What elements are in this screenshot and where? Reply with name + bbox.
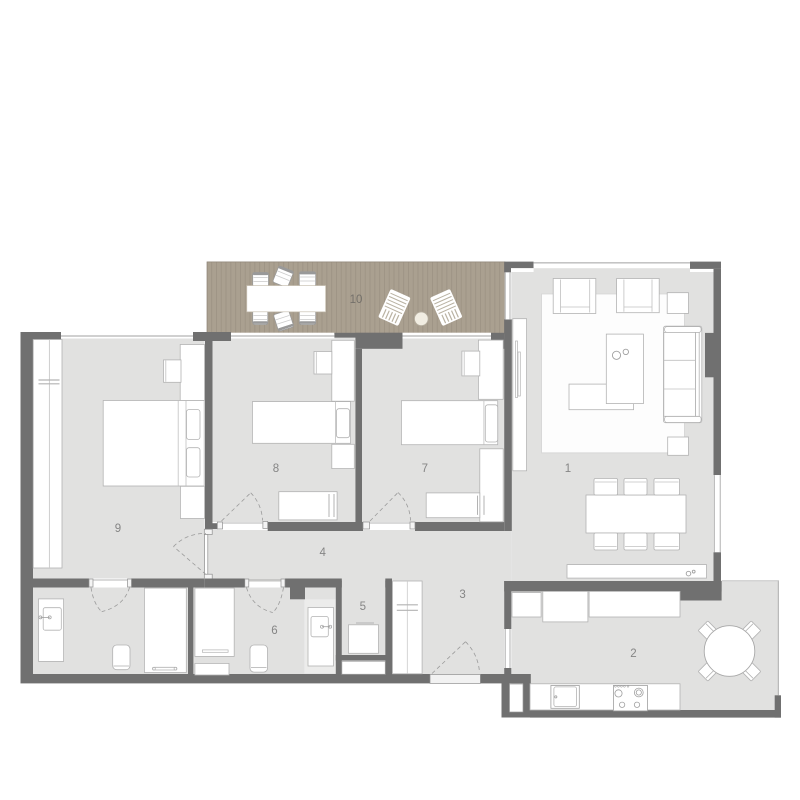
svg-text:9: 9 bbox=[115, 523, 121, 535]
svg-text:3: 3 bbox=[459, 589, 465, 601]
svg-text:2: 2 bbox=[630, 648, 636, 660]
svg-text:10: 10 bbox=[350, 294, 363, 306]
svg-text:4: 4 bbox=[319, 547, 326, 559]
svg-text:8: 8 bbox=[273, 463, 279, 475]
svg-text:5: 5 bbox=[360, 601, 366, 613]
svg-text:6: 6 bbox=[271, 625, 277, 637]
svg-text:1: 1 bbox=[565, 463, 571, 475]
svg-text:7: 7 bbox=[422, 463, 428, 475]
